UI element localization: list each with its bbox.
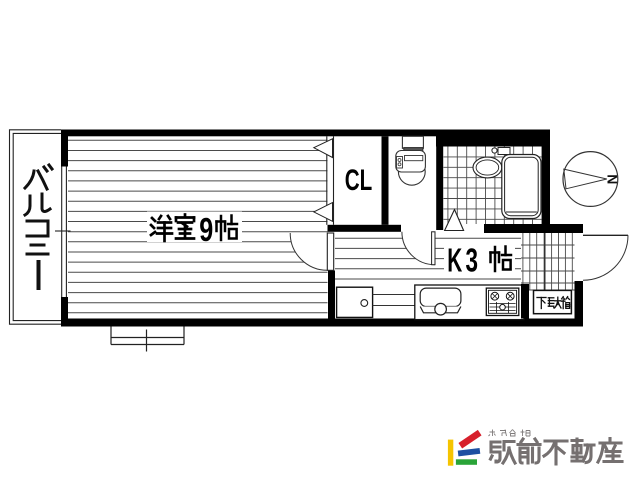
svg-text:CL: CL xyxy=(345,164,373,197)
svg-text:N: N xyxy=(605,174,621,184)
svg-text:K: K xyxy=(447,242,462,279)
svg-text:3: 3 xyxy=(466,242,479,279)
svg-text:9: 9 xyxy=(199,211,213,248)
